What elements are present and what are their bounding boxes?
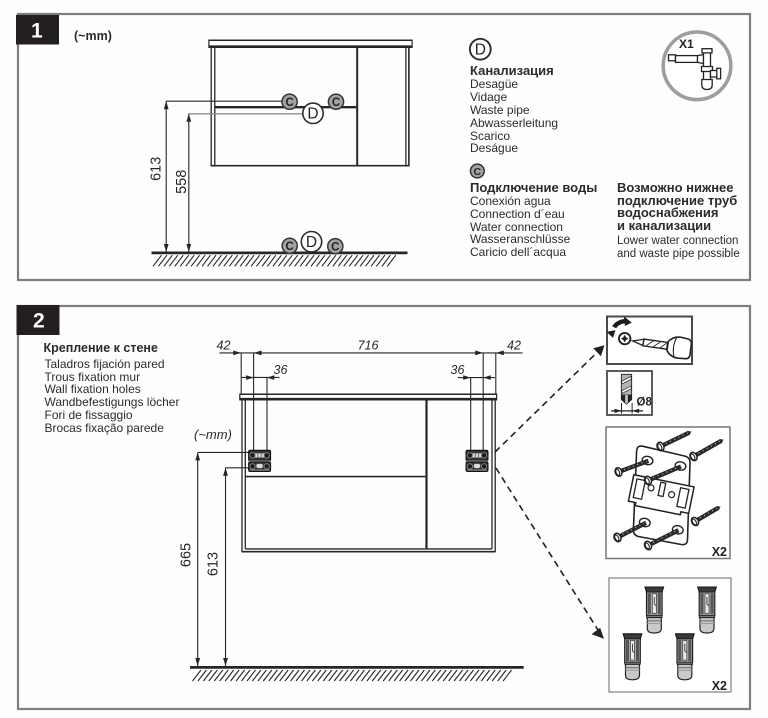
svg-text:C: C — [332, 97, 340, 109]
svg-text:613: 613 — [149, 157, 165, 181]
svg-text:613: 613 — [206, 552, 222, 576]
svg-text:42: 42 — [217, 339, 231, 353]
svg-text:42: 42 — [507, 339, 521, 353]
svg-text:C: C — [331, 241, 339, 253]
svg-text:C: C — [286, 241, 294, 253]
svg-text:558: 558 — [174, 170, 190, 194]
svg-text:D: D — [307, 106, 318, 123]
svg-text:1: 1 — [31, 20, 43, 43]
svg-text:Ø8: Ø8 — [637, 396, 653, 408]
svg-text:665: 665 — [179, 543, 195, 567]
svg-text:36: 36 — [274, 363, 288, 377]
svg-text:X1: X1 — [679, 37, 694, 51]
svg-text:716: 716 — [358, 339, 379, 353]
svg-text:C: C — [474, 166, 482, 178]
svg-text:2: 2 — [33, 310, 45, 333]
svg-text:D: D — [475, 42, 486, 59]
svg-text:C: C — [285, 97, 293, 109]
svg-text:36: 36 — [451, 363, 465, 377]
svg-text:D: D — [306, 234, 317, 251]
svg-text:X2: X2 — [712, 545, 727, 559]
svg-text:X2: X2 — [712, 679, 727, 693]
